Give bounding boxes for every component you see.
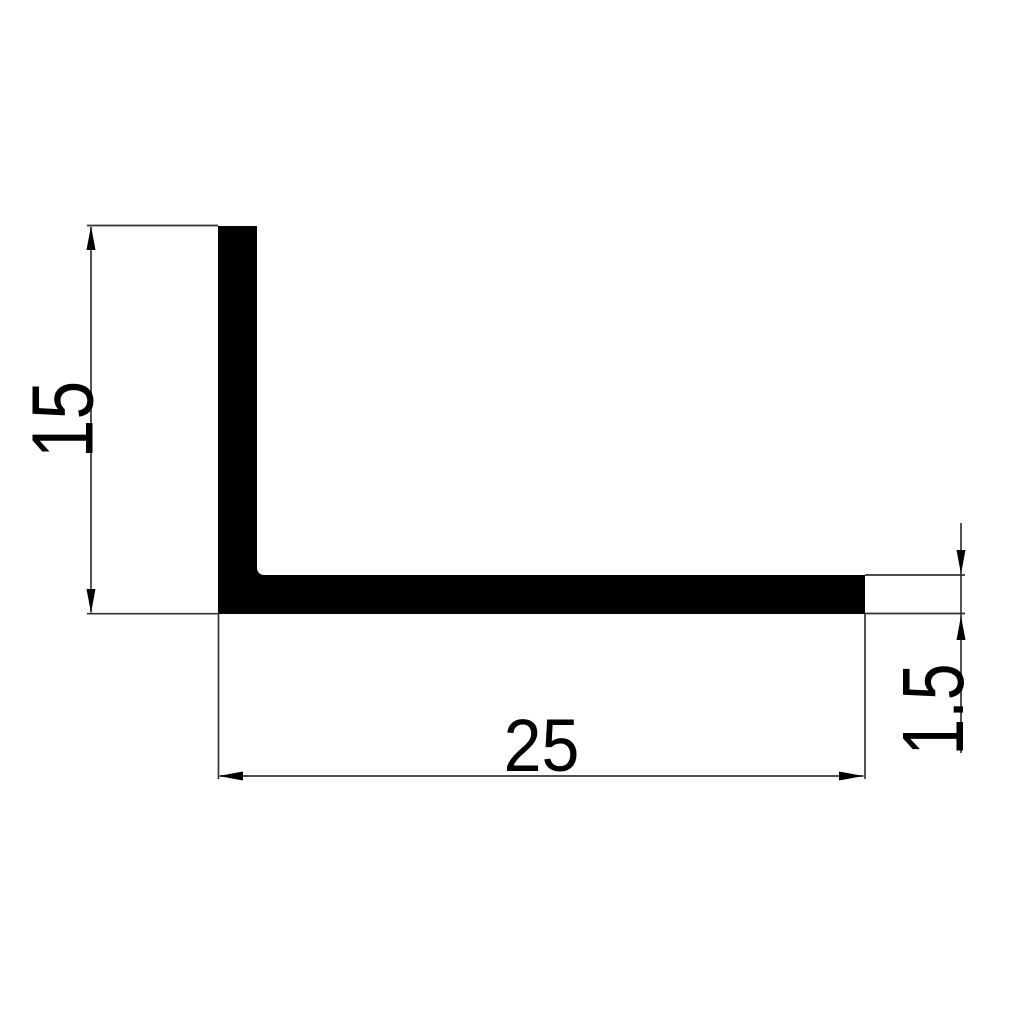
svg-text:1.5: 1.5 — [885, 664, 982, 756]
svg-text:15: 15 — [14, 381, 111, 458]
svg-text:25: 25 — [504, 705, 580, 787]
